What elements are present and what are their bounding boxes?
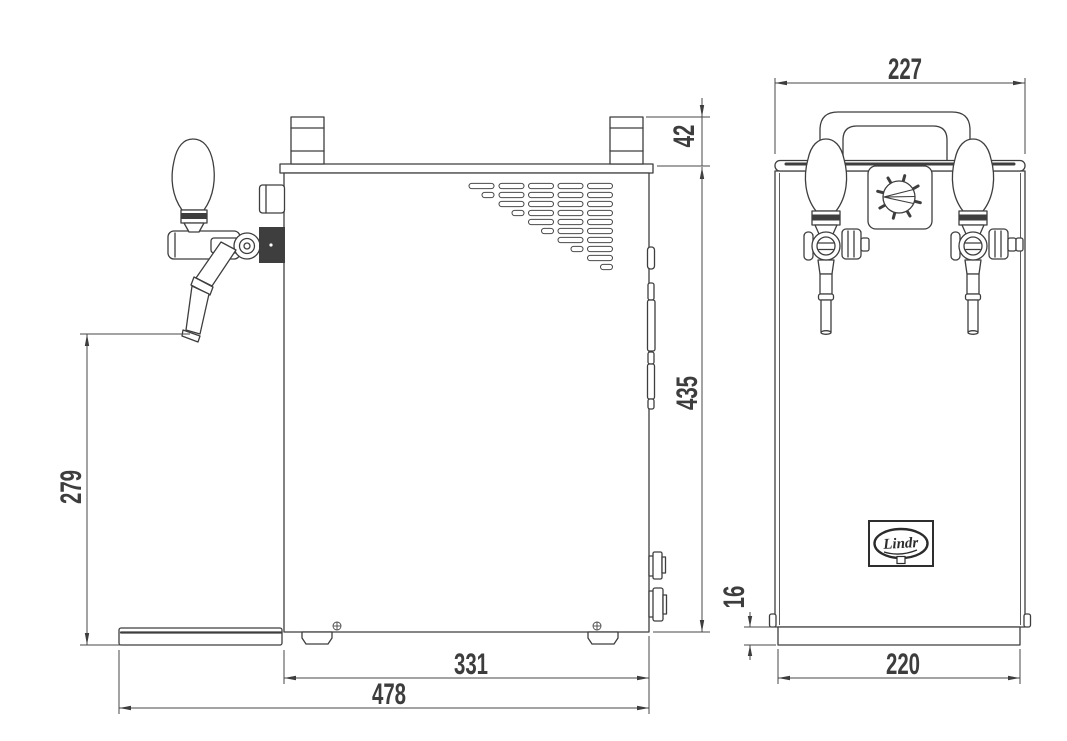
brand-logo: Lindr bbox=[869, 521, 933, 566]
dim-label-227: 227 bbox=[888, 53, 922, 86]
dim-label-435: 435 bbox=[671, 376, 704, 410]
tap-mount-block bbox=[260, 185, 285, 213]
dim-label-220: 220 bbox=[886, 648, 920, 681]
lid-flange bbox=[280, 164, 653, 173]
dim-label-331: 331 bbox=[454, 648, 488, 681]
base-plinth bbox=[778, 627, 1020, 645]
dim-base-width: 220 bbox=[778, 648, 1020, 684]
riser-column-right bbox=[610, 117, 643, 164]
logo-text: Lindr bbox=[882, 535, 919, 553]
cabinet-side bbox=[280, 164, 653, 632]
dim-body-depth: 331 bbox=[284, 636, 649, 714]
foot-left bbox=[302, 632, 332, 644]
dim-base-height: 16 bbox=[718, 586, 776, 660]
dim-label-478: 478 bbox=[372, 678, 406, 711]
thermostat bbox=[868, 166, 932, 229]
side-view: 42 435 279 331 bbox=[55, 98, 710, 714]
dim-riser-height: 42 bbox=[646, 98, 710, 179]
dim-label-279: 279 bbox=[55, 470, 88, 504]
dim-label-16: 16 bbox=[718, 586, 751, 609]
drip-tray bbox=[119, 628, 282, 645]
foot-right bbox=[588, 632, 618, 644]
screw-right bbox=[593, 622, 601, 630]
side-tab-left bbox=[770, 614, 777, 627]
side-tap bbox=[168, 139, 285, 342]
dim-tap-height: 279 bbox=[55, 334, 190, 645]
hose-connector-upper bbox=[649, 552, 666, 579]
wall-tab bbox=[1016, 238, 1023, 251]
dim-label-42: 42 bbox=[668, 125, 701, 148]
hose-connector-lower bbox=[649, 588, 667, 621]
tap-handle-side bbox=[172, 139, 214, 210]
screw-left bbox=[333, 622, 341, 630]
side-tab-right bbox=[1024, 614, 1031, 627]
riser-column-left bbox=[291, 117, 324, 164]
dim-overall-depth: 478 bbox=[119, 650, 649, 714]
drawing-svg: 42 435 279 331 bbox=[0, 0, 1067, 741]
technical-drawing: 42 435 279 331 bbox=[0, 0, 1067, 741]
front-view: Lindr 227 16 bbox=[718, 53, 1030, 684]
